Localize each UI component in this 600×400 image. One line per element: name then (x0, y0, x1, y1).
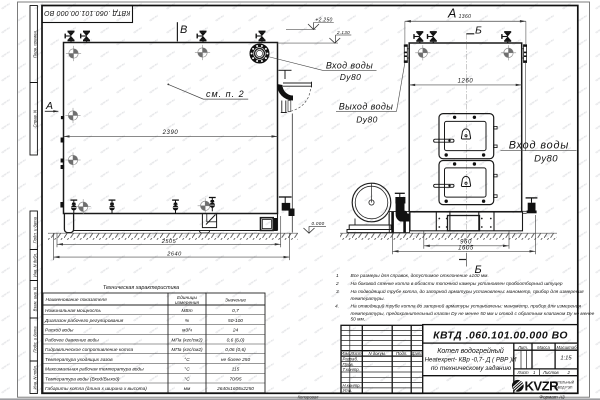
svg-text:Номинальная мощность: Номинальная мощность (45, 308, 102, 314)
svg-text:3: 3 (336, 289, 339, 295)
svg-text:Лит.: Лит. (517, 345, 528, 350)
svg-text:А: А (45, 100, 53, 112)
svg-text:Рабочее давление воды: Рабочее давление воды (45, 337, 99, 343)
svg-text:0,06 (0,6): 0,06 (0,6) (225, 347, 246, 353)
svg-text:КВТД .060.101.00.000 ВО: КВТД .060.101.00.000 ВО (433, 330, 568, 341)
svg-text:0,6 (6,0): 0,6 (6,0) (227, 337, 245, 343)
svg-text:Гидравлическое сопротивление к: Гидравлическое сопротивление котла (45, 347, 133, 353)
svg-text:Справ. N: Справ. N (32, 109, 37, 127)
svg-text:2505: 2505 (161, 239, 177, 245)
svg-text:0,7: 0,7 (232, 308, 239, 314)
svg-text:Масса: Масса (537, 345, 550, 350)
svg-text:Масштаб: Масштаб (556, 345, 577, 350)
svg-text:50 мм.: 50 мм. (351, 317, 366, 323)
svg-text:Температура уходящих газов: Температура уходящих газов (45, 357, 113, 363)
svg-text:температуры, предохранительный: температуры, предохранительный клапан Dу… (351, 310, 595, 317)
svg-text:Взам. инв. N: Взам. инв. N (32, 286, 37, 311)
svg-text:по техническому заданию: по техническому заданию (431, 364, 511, 372)
svg-text:измерения: измерения (175, 301, 199, 306)
svg-text:Максимальная рабочая температу: Максимальная рабочая температура воды (45, 367, 144, 373)
svg-text:Dy80: Dy80 (356, 115, 377, 125)
svg-text:115: 115 (232, 367, 240, 373)
svg-text:Подп. и дата: Подп. и дата (32, 216, 37, 243)
svg-text:Дата: Дата (410, 351, 423, 356)
svg-text:24: 24 (232, 328, 239, 334)
svg-text:2.130: 2.130 (336, 30, 350, 35)
svg-text:Выход воды: Выход воды (339, 102, 394, 112)
svg-text:%: % (185, 318, 190, 324)
svg-text:0.000: 0.000 (312, 221, 325, 226)
svg-text:МПа (кгс/см2): МПа (кгс/см2) (171, 337, 203, 343)
svg-text:Наименование показателя: Наименование показателя (46, 297, 108, 303)
svg-text:Н.контр.: Н.контр. (343, 383, 361, 388)
svg-text:Формат А3: Формат А3 (539, 395, 565, 400)
svg-text:2390: 2390 (162, 130, 179, 136)
svg-text:В: В (180, 24, 187, 36)
svg-text:1360: 1360 (459, 14, 472, 20)
svg-text:Вход воды: Вход воды (509, 139, 570, 151)
svg-text:Т.контр.: Т.контр. (343, 367, 360, 372)
svg-text:Б: Б (475, 25, 482, 37)
svg-text:1: 1 (336, 273, 339, 279)
svg-text:Листов: Листов (542, 370, 559, 375)
svg-text:°С: °С (184, 367, 190, 373)
svg-text:1260: 1260 (458, 78, 474, 84)
svg-text:Габариты котла (длина х ширина: Габариты котла (длина х ширина х высота) (45, 386, 147, 392)
svg-text:Температура воды (Вход/Выход): Температура воды (Вход/Выход) (45, 376, 120, 382)
svg-text:Котел водогрейный: Котел водогрейный (437, 347, 504, 355)
svg-text:2: 2 (335, 281, 339, 287)
svg-text:N докум.: N докум. (369, 351, 386, 356)
svg-text:Подп.: Подп. (396, 351, 407, 356)
svg-text:м3/ч: м3/ч (182, 328, 192, 334)
svg-text:Лист: Лист (349, 351, 361, 356)
svg-text:1605: 1605 (458, 245, 474, 251)
svg-text:°С: °С (184, 376, 190, 382)
svg-text:Значение: Значение (225, 298, 246, 304)
svg-text:не более 250: не более 250 (221, 357, 251, 363)
svg-text:Расход воды: Расход воды (45, 328, 74, 334)
svg-text:Вход воды: Вход воды (326, 61, 373, 71)
svg-text:°С: °С (184, 357, 190, 363)
svg-text:КВТД .060.101.00.000 ВО: КВТД .060.101.00.000 ВО (44, 9, 131, 16)
svg-text:Разраб.: Разраб. (343, 357, 359, 362)
svg-text:Dy80: Dy80 (534, 154, 558, 165)
svg-text:2640: 2640 (166, 251, 182, 257)
svg-text:Утв.: Утв. (343, 388, 353, 393)
svg-text:Лист: Лист (517, 370, 529, 375)
svg-text:50-100: 50-100 (228, 318, 243, 324)
svg-text:мм: мм (184, 387, 191, 392)
svg-text:Перв. примен.: Перв. примен. (32, 30, 37, 58)
svg-text:+2.250: +2.250 (315, 17, 332, 23)
svg-text:температуры.: температуры. (351, 297, 385, 302)
svg-text:Heatexpert- КВр -0,7- Д ( РВР: Heatexpert- КВр -0,7- Д ( РВР )И (425, 357, 517, 364)
svg-text:Dy80: Dy80 (340, 72, 361, 82)
svg-text:На боковой стенке котла в обла: На боковой стенке котла в области топочн… (351, 280, 563, 287)
svg-text:Копировал: Копировал (298, 395, 319, 400)
svg-text:На подводящий трубе котла, д: На подводящий трубе котла, до запорной а… (351, 288, 584, 295)
svg-text:МПа (кгс/см2): МПа (кгс/см2) (171, 347, 203, 353)
svg-text:70/95: 70/95 (229, 376, 241, 382)
svg-text:4.: 4. (335, 304, 339, 310)
svg-text:см. п. 2: см. п. 2 (206, 89, 245, 99)
svg-text:Подп. и дата: Подп. и дата (32, 326, 37, 353)
svg-text:А: А (447, 7, 456, 21)
svg-text:КОТЕЛЬНЫЙ: КОТЕЛЬНЫЙ (554, 380, 575, 384)
svg-text:На отводящий трубе котла до за: На отводящий трубе котла до запорной арм… (351, 303, 582, 310)
svg-text:ЗАВОД РЭП: ЗАВОД РЭП (554, 385, 573, 389)
svg-text:МВт: МВт (181, 308, 192, 314)
svg-text:Инв. N дубл.: Инв. N дубл. (32, 253, 37, 277)
svg-text:2640х1605х2250: 2640х1605х2250 (216, 386, 254, 392)
svg-text:1:15: 1:15 (560, 356, 572, 362)
svg-text:Техническая характеристика: Техническая характеристика (103, 285, 179, 291)
svg-text:Изм.: Изм. (341, 351, 350, 356)
svg-text:Диапазон рабочего регулировани: Диапазон рабочего регулирования (44, 318, 124, 324)
svg-text:Единицы: Единицы (177, 295, 198, 301)
svg-text:Все размеры для справок, допус: Все размеры для справок, допустимое откл… (351, 273, 489, 279)
svg-text:Пров.: Пров. (343, 362, 354, 367)
svg-text:Инв. N подл.: Инв. N подл. (32, 365, 37, 389)
